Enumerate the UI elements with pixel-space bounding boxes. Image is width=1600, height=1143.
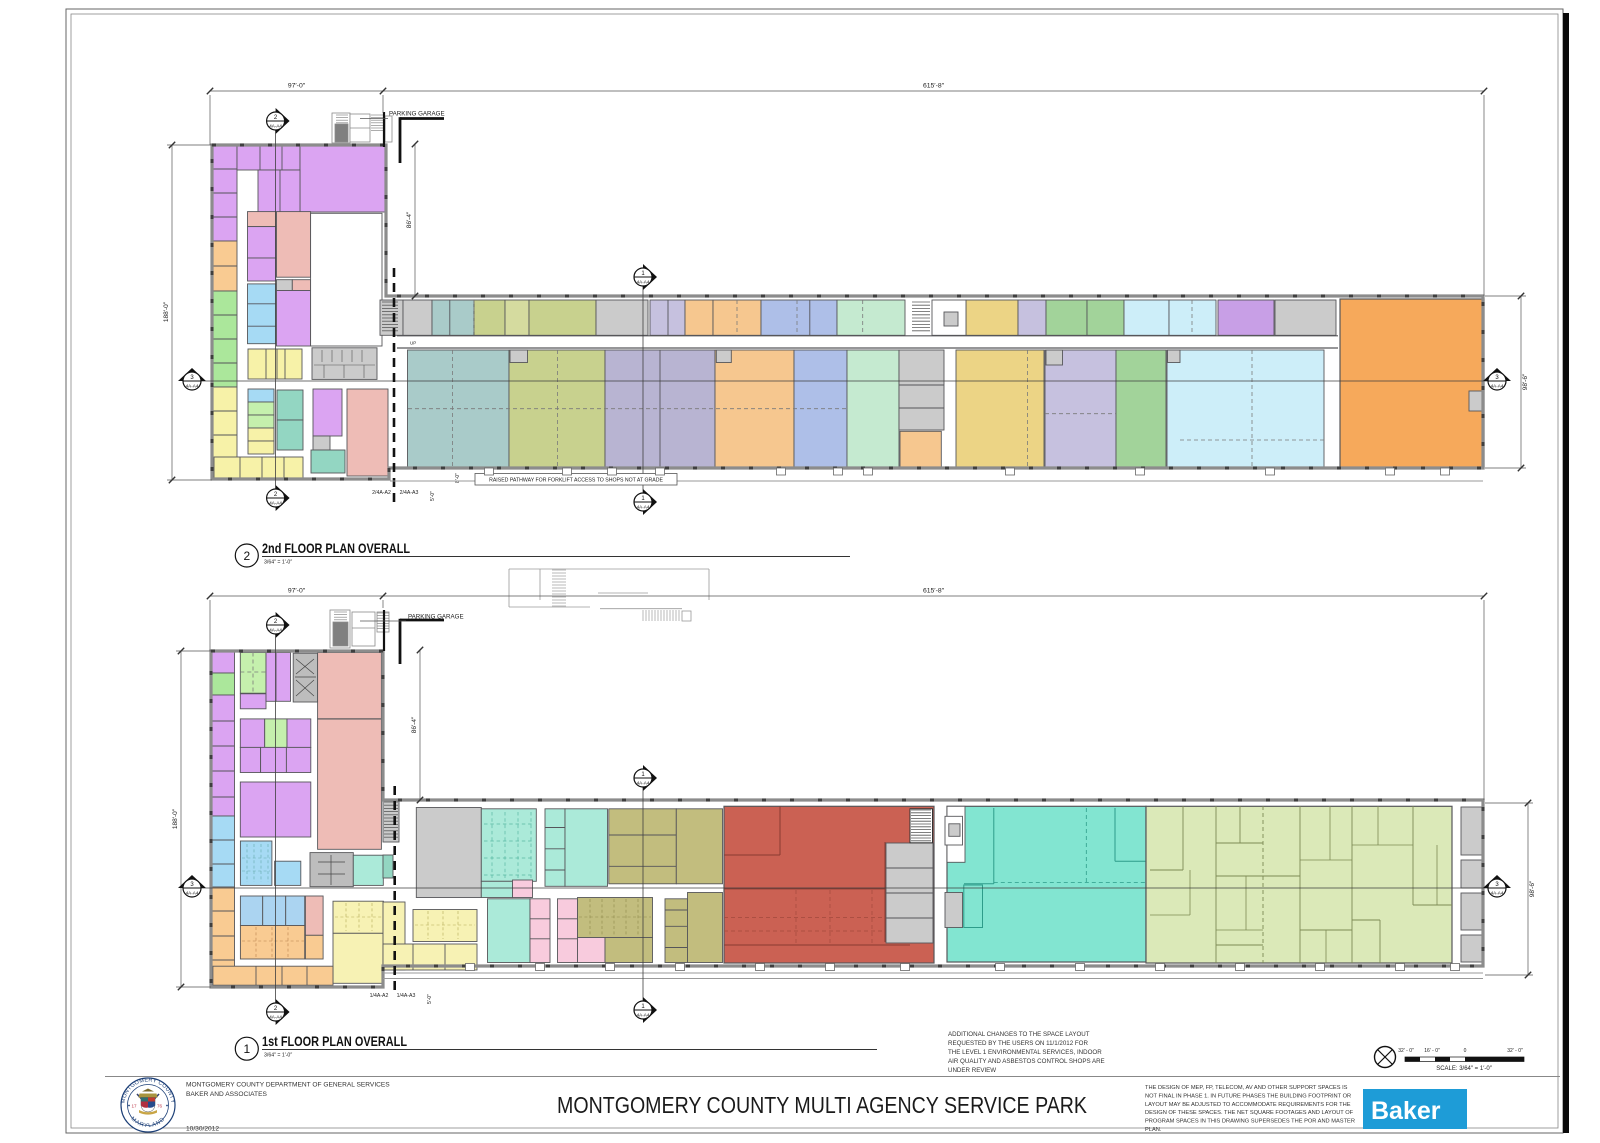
svg-text:UP: UP: [410, 341, 416, 346]
svg-text:RAISED PATHWAY FOR FORKLIFT AC: RAISED PATHWAY FOR FORKLIFT ACCESS TO SH…: [489, 478, 663, 484]
svg-text:ADDITIONAL CHANGES TO THE SPAC: ADDITIONAL CHANGES TO THE SPACE LAYOUT: [948, 1031, 1090, 1038]
svg-text:4A-A4: 4A-A4: [637, 279, 650, 284]
svg-text:97′-0″: 97′-0″: [288, 588, 306, 595]
svg-text:98′-6″: 98′-6″: [1529, 880, 1536, 897]
svg-text:DESIGN OF THESE SPACES. THE NE: DESIGN OF THESE SPACES. THE NET SQUARE F…: [1145, 1110, 1354, 1116]
svg-text:2: 2: [243, 549, 250, 563]
svg-text:BAKER AND ASSOCIATES: BAKER AND ASSOCIATES: [186, 1091, 267, 1098]
svg-text:2/4A-A2: 2/4A-A2: [372, 490, 391, 496]
svg-text:THE DESIGN OF MEP, FP, TELECOM: THE DESIGN OF MEP, FP, TELECOM, AV AND O…: [1145, 1085, 1348, 1091]
svg-text:3/64″ = 1′-0″: 3/64″ = 1′-0″: [264, 1053, 292, 1059]
svg-text:10/30/2012: 10/30/2012: [186, 1126, 219, 1133]
svg-text:0: 0: [1464, 1048, 1467, 1054]
svg-text:PARKING GARAGE: PARKING GARAGE: [389, 111, 445, 118]
svg-text:4A-A4: 4A-A4: [637, 504, 650, 509]
svg-text:86′-4″: 86′-4″: [411, 716, 418, 733]
svg-text:5′-0″: 5′-0″: [430, 491, 436, 501]
svg-text:Baker: Baker: [1371, 1097, 1441, 1125]
svg-text:4A-A4: 4A-A4: [1491, 890, 1504, 895]
svg-text:98′-6″: 98′-6″: [1522, 373, 1529, 390]
svg-text:2/4A-A3: 2/4A-A3: [400, 490, 419, 496]
svg-text:5′-0″: 5′-0″: [427, 994, 433, 1004]
svg-text:32′ - 0″: 32′ - 0″: [1398, 1048, 1414, 1054]
svg-text:NOT FINAL IN PHASE 1. IN FUTUR: NOT FINAL IN PHASE 1. IN FUTURE PHASES T…: [1145, 1093, 1351, 1099]
svg-text:PLAN.: PLAN.: [1145, 1127, 1162, 1133]
svg-text:4A-A4: 4A-A4: [637, 1012, 650, 1017]
svg-text:MONTGOMERY COUNTY DEPARTMENT O: MONTGOMERY COUNTY DEPARTMENT OF GENERAL …: [186, 1082, 390, 1089]
svg-text:97′-0″: 97′-0″: [288, 83, 306, 90]
svg-text:UNDER REVIEW: UNDER REVIEW: [948, 1067, 996, 1074]
svg-text:4A-A4: 4A-A4: [269, 1014, 282, 1019]
svg-text:1st FLOOR PLAN OVERALL: 1st FLOOR PLAN OVERALL: [262, 1034, 407, 1049]
svg-text:76: 76: [157, 1104, 163, 1109]
svg-text:17: 17: [132, 1104, 138, 1109]
svg-text:1/4A-A2: 1/4A-A2: [370, 993, 389, 999]
svg-text:2nd FLOOR PLAN OVERALL: 2nd FLOOR PLAN OVERALL: [262, 541, 410, 556]
svg-text:16′ - 0″: 16′ - 0″: [1424, 1048, 1440, 1054]
svg-text:AIR QUALITY AND ASBESTOS CONTR: AIR QUALITY AND ASBESTOS CONTROL SHOPS A…: [948, 1058, 1105, 1065]
svg-text:4A-A4: 4A-A4: [269, 500, 282, 505]
svg-text:REQUESTED BY THE USERS ON 11/1: REQUESTED BY THE USERS ON 11/1/2012 FOR: [948, 1040, 1088, 1047]
svg-text:4A-A4: 4A-A4: [1491, 383, 1504, 388]
svg-text:615′-8″: 615′-8″: [923, 83, 945, 90]
svg-text:86′-4″: 86′-4″: [406, 211, 413, 228]
svg-text:1: 1: [243, 1042, 250, 1056]
svg-text:MONTGOMERY COUNTY MULTI AGENCY: MONTGOMERY COUNTY MULTI AGENCY SERVICE P…: [557, 1092, 1088, 1118]
svg-text:32′ - 0″: 32′ - 0″: [1507, 1048, 1523, 1054]
svg-text:SCALE: 3/64″ = 1′-0″: SCALE: 3/64″ = 1′-0″: [1436, 1066, 1492, 1072]
svg-text:4A-A4: 4A-A4: [186, 890, 199, 895]
svg-text:1/4A-A3: 1/4A-A3: [397, 993, 416, 999]
svg-text:615′-8″: 615′-8″: [923, 588, 945, 595]
svg-text:4A-A4: 4A-A4: [637, 780, 650, 785]
svg-text:PARKING GARAGE: PARKING GARAGE: [408, 614, 464, 621]
svg-text:THE LEVEL 1 ENVIRONMENTAL SERV: THE LEVEL 1 ENVIRONMENTAL SERVICES, INDO…: [948, 1049, 1102, 1056]
svg-text:188′-0″: 188′-0″: [163, 301, 170, 322]
svg-text:LAYOUT MAY BE ADJUSTED TO ACCO: LAYOUT MAY BE ADJUSTED TO ACCOMMODATE RE…: [1145, 1102, 1351, 1108]
svg-text:3/64″ = 1′-0″: 3/64″ = 1′-0″: [264, 560, 292, 566]
svg-text:4A-A4: 4A-A4: [269, 123, 282, 128]
svg-text:188′-0″: 188′-0″: [172, 808, 179, 829]
svg-text:4A-A4: 4A-A4: [269, 627, 282, 632]
svg-text:PROGRAM SPACES IN THIS DRAWING: PROGRAM SPACES IN THIS DRAWING SUPERSEDE…: [1145, 1119, 1355, 1125]
svg-text:4A-A4: 4A-A4: [186, 383, 199, 388]
